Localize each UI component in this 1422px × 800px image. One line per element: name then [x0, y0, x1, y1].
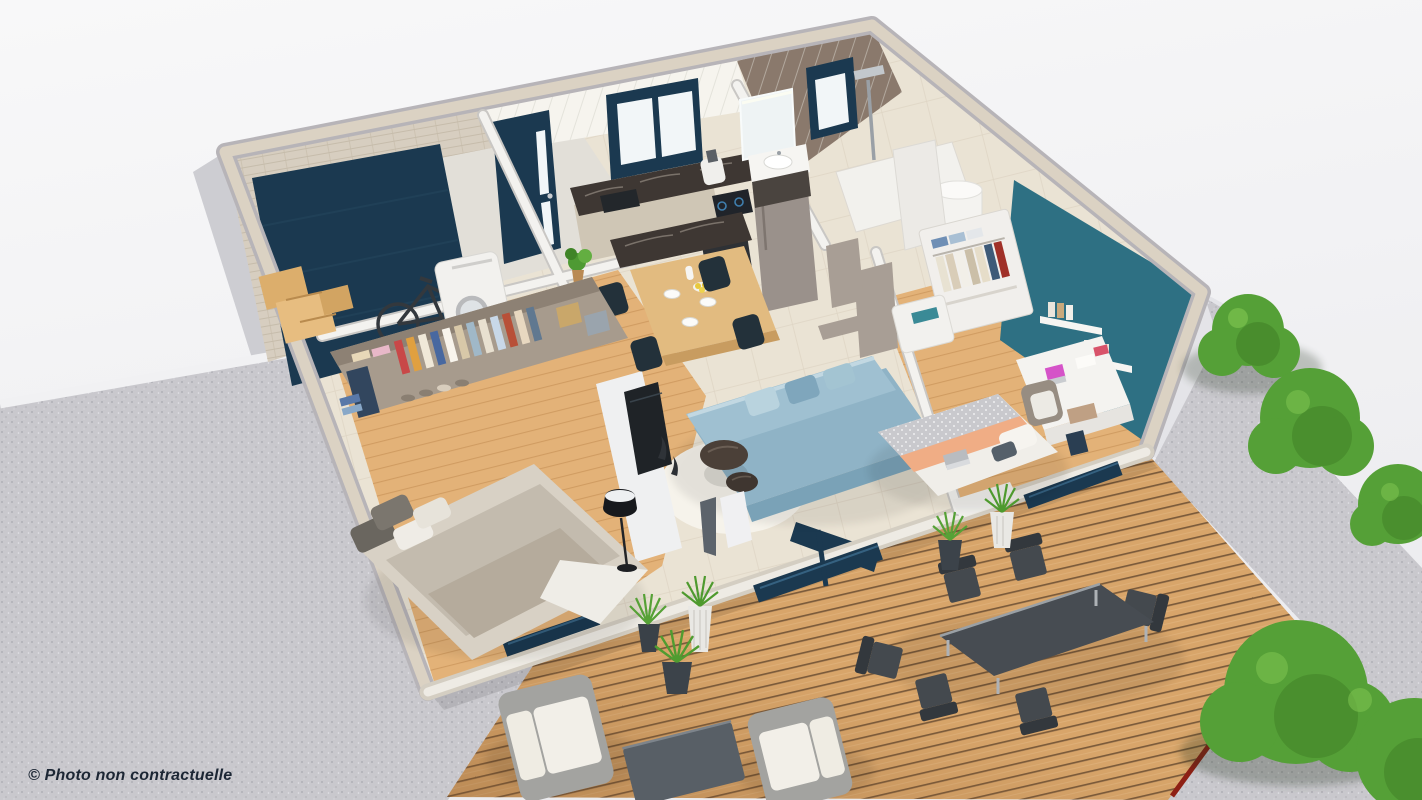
plate-2 [700, 298, 716, 307]
floorplan-render: © Photo non contractuelle [0, 0, 1422, 800]
lamp-base [617, 564, 637, 572]
faucet [777, 151, 781, 155]
plate-3 [682, 318, 698, 327]
plate-1 [664, 290, 680, 299]
kitchen-window-pane-left [617, 98, 656, 165]
bathroom-window-pane [815, 73, 849, 130]
caption: © Photo non contractuelle [28, 767, 232, 784]
open-door-3 [826, 238, 864, 308]
nesting-table-small [726, 472, 758, 492]
lamp-shade-top [605, 490, 635, 502]
scene-canvas: © Photo non contractuelle [0, 0, 1422, 800]
nesting-table-large [700, 440, 748, 470]
kitchen-window-pane-right [658, 91, 696, 157]
entry-door-handle [547, 193, 552, 198]
